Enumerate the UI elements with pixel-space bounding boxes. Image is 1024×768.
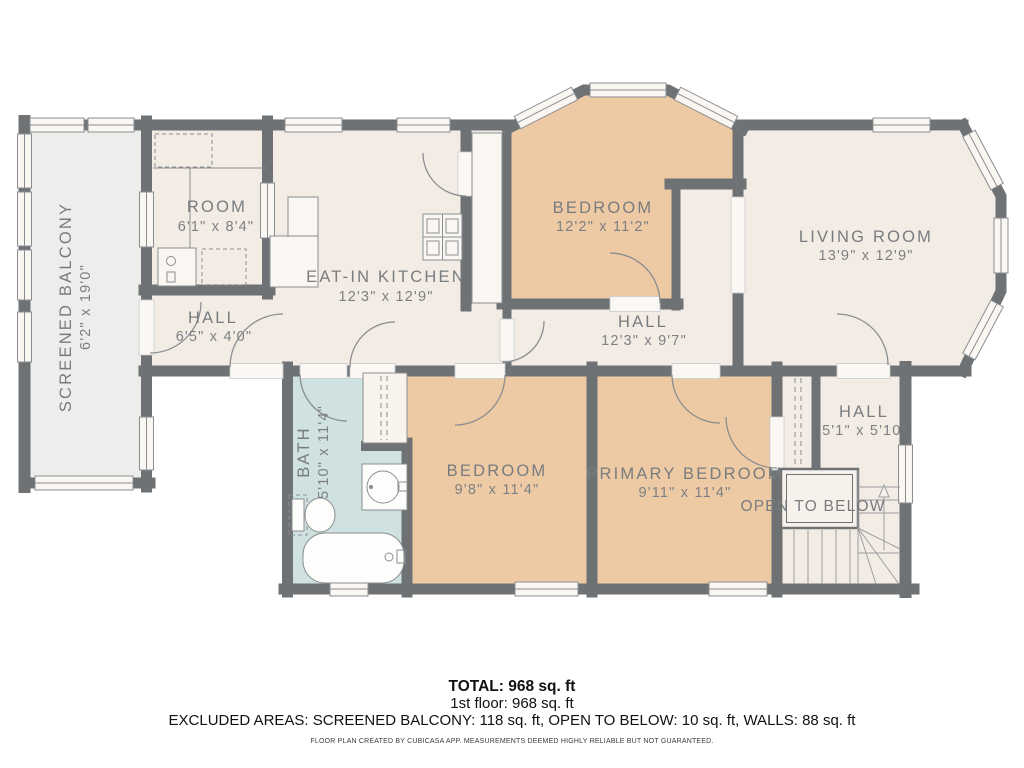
window bbox=[140, 417, 154, 470]
dims-hall-mid: 12'3" x 9'7" bbox=[601, 333, 687, 349]
label-living-room: LIVING ROOM bbox=[799, 228, 933, 246]
window bbox=[330, 582, 368, 596]
floor-plan: SCREENED BALCONY 6'2" x 19'0" ROOM 6'1" … bbox=[0, 0, 1024, 768]
window bbox=[140, 192, 154, 247]
dims-living-room: 13'9" x 12'9" bbox=[818, 248, 913, 264]
label-bath: BATH bbox=[295, 426, 313, 478]
closet bbox=[363, 373, 407, 443]
dims-bedroom-lower: 9'8" x 11'4" bbox=[455, 482, 540, 498]
window bbox=[873, 118, 930, 132]
window bbox=[88, 118, 134, 132]
window bbox=[30, 118, 84, 132]
label-bedroom-lower: BEDROOM bbox=[447, 462, 548, 480]
window bbox=[285, 118, 342, 132]
label-bedroom-top: BEDROOM bbox=[553, 199, 654, 217]
toilet-icon bbox=[289, 495, 335, 535]
kitchen-sink-icon bbox=[158, 248, 196, 286]
label-open-to-below: OPEN TO BELOW bbox=[740, 498, 885, 515]
dims-hall-upper: 6'5" x 4'0" bbox=[176, 329, 253, 345]
window bbox=[994, 218, 1008, 273]
dims-screened-balcony: 6'2" x 19'0" bbox=[78, 264, 94, 350]
window bbox=[709, 582, 767, 596]
window bbox=[18, 250, 32, 300]
window bbox=[590, 83, 666, 97]
dims-room: 6'1" x 8'4" bbox=[178, 219, 255, 235]
window bbox=[18, 312, 32, 362]
dims-hall-lower: 5'1" x 5'10" bbox=[822, 423, 908, 439]
stove-icon bbox=[423, 214, 462, 260]
dims-kitchen: 12'3" x 12'9" bbox=[338, 289, 433, 305]
label-hall-upper: HALL bbox=[188, 309, 238, 327]
label-room: ROOM bbox=[187, 198, 247, 216]
dims-bedroom-top: 12'2" x 11'2" bbox=[556, 219, 650, 235]
dims-bath: 5'10" x 11'4" bbox=[316, 405, 332, 499]
dims-primary-bedroom: 9'11" x 11'4" bbox=[639, 485, 732, 501]
floor-plan-page: SCREENED BALCONY 6'2" x 19'0" ROOM 6'1" … bbox=[0, 0, 1024, 768]
label-primary-bedroom: PRIMARY BEDROOM bbox=[586, 465, 783, 483]
window bbox=[397, 118, 450, 132]
disclaimer-text: FLOOR PLAN CREATED BY CUBICASA APP. MEAS… bbox=[0, 738, 1024, 745]
label-hall-lower: HALL bbox=[839, 403, 889, 421]
excluded-areas-text: EXCLUDED AREAS: SCREENED BALCONY: 118 sq… bbox=[0, 712, 1024, 729]
bathroom-sink-icon bbox=[362, 464, 407, 510]
label-hall-mid: HALL bbox=[618, 313, 668, 331]
window bbox=[515, 582, 578, 596]
total-area-text: TOTAL: 968 sq. ft bbox=[0, 678, 1024, 695]
window bbox=[18, 134, 32, 188]
label-screened-balcony: SCREENED BALCONY bbox=[57, 202, 75, 412]
label-kitchen: EAT-IN KITCHEN bbox=[306, 268, 466, 286]
footer: TOTAL: 968 sq. ft 1st floor: 968 sq. ft … bbox=[0, 678, 1024, 745]
pass-through-window bbox=[261, 183, 275, 238]
bathtub-icon bbox=[303, 533, 405, 583]
floor-area-text: 1st floor: 968 sq. ft bbox=[0, 695, 1024, 712]
tall-cabinet bbox=[472, 133, 502, 303]
window bbox=[899, 445, 913, 503]
window bbox=[18, 192, 32, 246]
window bbox=[35, 476, 133, 490]
